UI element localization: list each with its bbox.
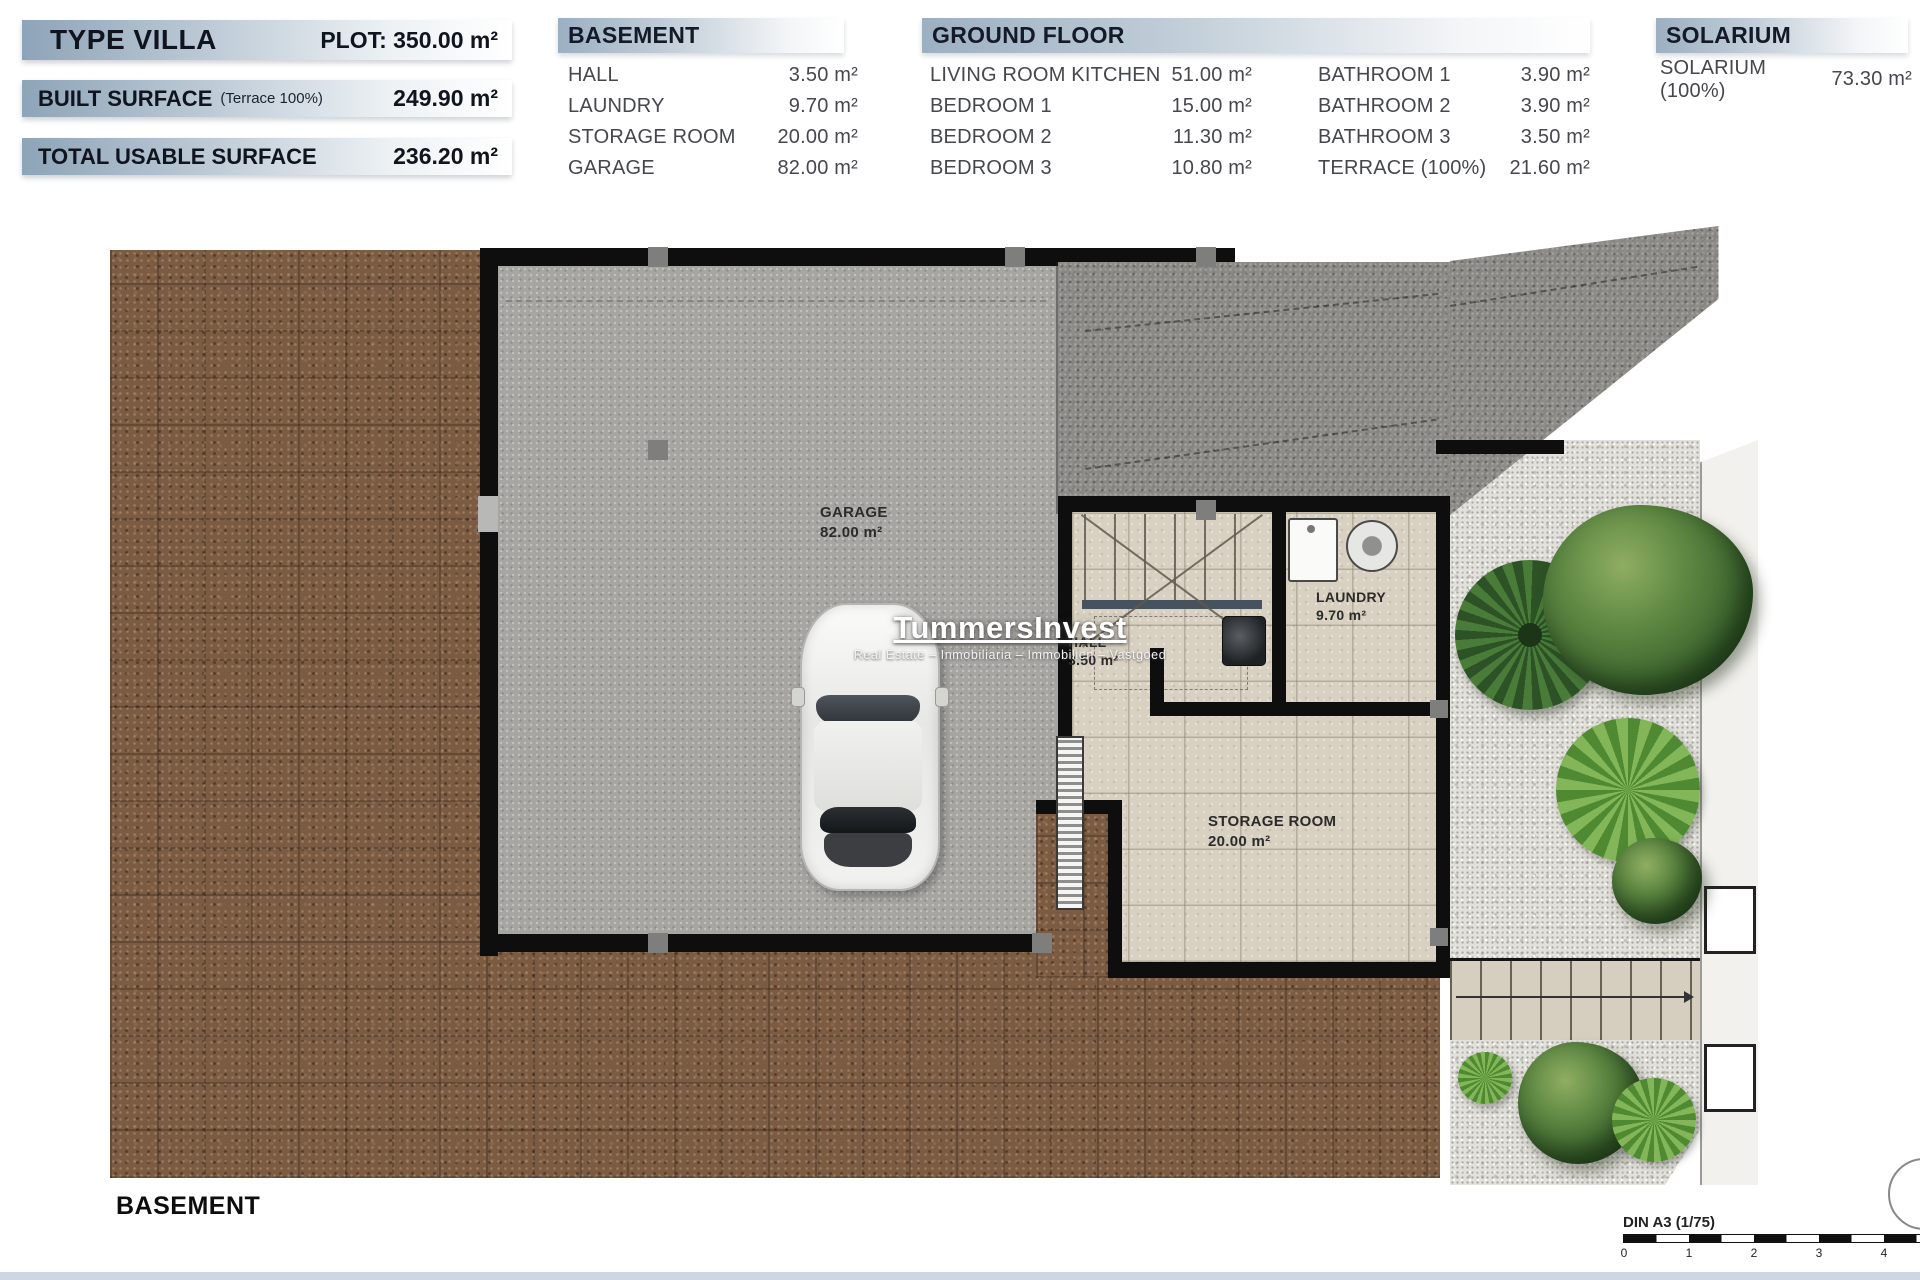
storage-west-wall (1108, 814, 1122, 978)
scale-tick: 2 (1747, 1246, 1761, 1260)
garden-top-wall (1436, 440, 1564, 454)
scale-tick: 1 (1682, 1246, 1696, 1260)
stairs-section-cut (1082, 600, 1262, 609)
car-mirror (935, 687, 949, 707)
storage-top-wall (1150, 702, 1436, 716)
west-wall (480, 248, 498, 956)
garage-floor (498, 266, 1058, 934)
west-wall-door-opening (478, 496, 498, 532)
car-trunk (824, 833, 912, 867)
stairs-laundry-wall (1272, 512, 1286, 702)
garage-label: GARAGE 82.00 m² (820, 503, 888, 542)
washing-machine (1346, 520, 1398, 572)
column (648, 247, 668, 267)
grass-tuft (1458, 1052, 1512, 1104)
column (1196, 247, 1216, 267)
watermark-tagline: Real Estate – Inmobiliaria – Immobilien … (850, 648, 1170, 662)
floor-plan: GARAGE 82.00 m² HALL 3.50 m² LAUNDRY 9.7… (0, 0, 1920, 1280)
plan-sheet: TYPE VILLA PLOT: 350.00 m² BUILT SURFACE… (0, 0, 1920, 1280)
scale-tick: 0 (1617, 1246, 1631, 1260)
car-mirror (791, 687, 805, 707)
column (1032, 933, 1052, 953)
column (1196, 500, 1216, 520)
grass-tuft (1612, 1078, 1696, 1162)
bottom-edge-strip (0, 1272, 1920, 1280)
scale-label: DIN A3 (1/75) (1623, 1214, 1715, 1231)
walkway-post (1704, 886, 1756, 954)
scale-bar (1623, 1234, 1920, 1243)
exterior-stairs-walkline (1456, 996, 1686, 998)
storage-room-label: STORAGE ROOM 20.00 m² (1208, 812, 1336, 851)
scale-tick: 3 (1812, 1246, 1826, 1260)
scale-tick: 4 (1877, 1246, 1891, 1260)
exterior-stairs (1450, 958, 1700, 1044)
garage-door-threshold-line (1056, 262, 1058, 514)
car-roof (814, 721, 922, 811)
watermark-brand: TummersInvest (850, 610, 1170, 646)
water-heater (1222, 616, 1266, 666)
garage-grille-door (1056, 736, 1084, 910)
column (1430, 700, 1448, 718)
stairs-steps (1084, 514, 1262, 600)
watermark: TummersInvest Real Estate – Inmobiliaria… (850, 610, 1170, 662)
column (1430, 928, 1448, 946)
garage-door-projection-line (506, 300, 1046, 302)
terrain-bottom (110, 948, 1440, 1178)
car-rear-window (820, 807, 916, 833)
palm-grass (1556, 718, 1700, 862)
laundry-sink (1288, 518, 1338, 582)
laundry-label: LAUNDRY 9.70 m² (1316, 588, 1386, 624)
walkway-post (1704, 1044, 1756, 1112)
floor-title: BASEMENT (116, 1192, 260, 1221)
column (1005, 247, 1025, 267)
column (648, 440, 668, 460)
stairs-direction-arrow (1684, 991, 1694, 1003)
column (648, 933, 668, 953)
